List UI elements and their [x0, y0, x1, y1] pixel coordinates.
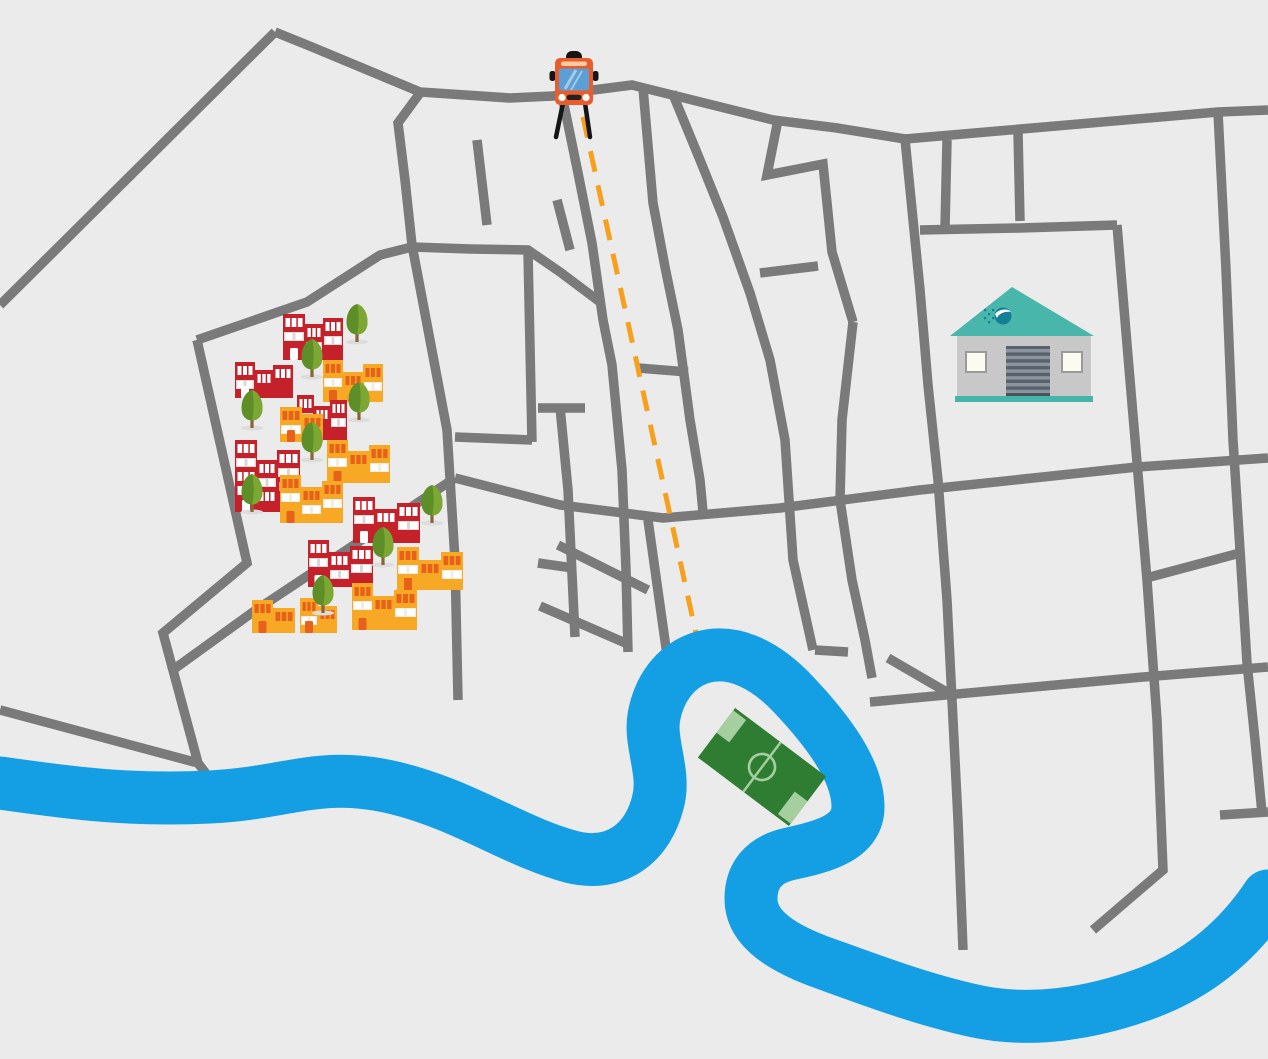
window	[290, 469, 298, 476]
window	[366, 550, 371, 559]
window	[294, 479, 298, 488]
window	[454, 571, 461, 578]
window	[406, 507, 411, 516]
window	[292, 494, 299, 501]
window	[295, 411, 300, 420]
window	[381, 464, 388, 471]
building-door	[287, 511, 295, 523]
window	[356, 455, 360, 464]
window	[296, 333, 303, 340]
window	[332, 571, 339, 578]
window	[333, 419, 338, 426]
window	[377, 368, 381, 377]
window	[249, 366, 253, 375]
window	[378, 513, 383, 522]
window	[356, 501, 361, 510]
door-slat	[1006, 356, 1050, 359]
window	[397, 609, 405, 616]
window	[271, 464, 275, 473]
window	[372, 449, 376, 458]
window	[336, 485, 340, 494]
window	[340, 419, 345, 426]
window	[286, 318, 291, 327]
window	[266, 604, 270, 613]
window	[304, 399, 307, 408]
city-map-illustration	[0, 0, 1268, 1059]
building-door	[287, 430, 295, 442]
window	[403, 594, 408, 603]
bus-mirror	[593, 71, 599, 81]
window	[325, 500, 332, 507]
window	[356, 516, 363, 523]
window	[326, 322, 330, 331]
city-map-canvas	[0, 0, 1268, 1059]
window	[337, 404, 340, 413]
window	[258, 374, 261, 383]
door-slat	[1006, 349, 1050, 352]
window	[360, 587, 364, 596]
window	[276, 612, 281, 621]
window	[444, 556, 449, 565]
road	[815, 650, 848, 652]
window	[353, 550, 358, 559]
window	[372, 464, 379, 471]
window	[413, 507, 418, 516]
window	[412, 551, 417, 560]
window	[238, 486, 243, 495]
door-slat	[1006, 390, 1050, 393]
window	[238, 472, 243, 481]
window	[289, 411, 294, 420]
window	[288, 612, 293, 621]
window	[410, 594, 415, 603]
window	[260, 464, 264, 473]
window	[341, 571, 348, 578]
window	[422, 564, 427, 573]
window	[322, 544, 326, 553]
window	[330, 459, 337, 466]
window	[359, 550, 364, 559]
window	[325, 410, 328, 419]
window	[313, 506, 320, 513]
window	[331, 322, 335, 331]
building-door	[305, 621, 313, 633]
window	[317, 328, 320, 337]
window	[387, 600, 391, 609]
window	[282, 612, 287, 621]
window	[281, 369, 285, 378]
door-slat	[1006, 369, 1050, 372]
road	[945, 140, 947, 228]
window	[351, 376, 355, 385]
window	[260, 604, 264, 613]
window	[339, 459, 346, 466]
window	[265, 492, 269, 501]
window	[271, 492, 275, 501]
window	[312, 602, 315, 611]
bus-mirror	[550, 71, 556, 81]
window	[250, 444, 255, 453]
window	[335, 379, 341, 386]
window	[362, 501, 367, 510]
window	[283, 479, 287, 488]
window	[397, 594, 402, 603]
window	[400, 566, 407, 573]
window	[456, 556, 461, 565]
road	[538, 563, 573, 568]
window	[262, 374, 265, 383]
window	[304, 491, 308, 500]
window	[311, 559, 318, 566]
window	[316, 544, 320, 553]
window	[362, 455, 366, 464]
road	[1018, 132, 1020, 221]
window	[383, 449, 387, 458]
road	[638, 368, 688, 372]
building-door	[404, 578, 412, 590]
window	[335, 444, 339, 453]
road	[455, 437, 532, 440]
building-door	[359, 618, 367, 630]
window	[337, 322, 341, 331]
window	[238, 444, 243, 453]
building-door	[360, 531, 368, 543]
window	[238, 366, 242, 375]
window	[366, 516, 373, 523]
window	[303, 602, 306, 611]
window	[363, 565, 371, 572]
warehouse-window	[1062, 352, 1082, 372]
window	[269, 479, 275, 486]
window	[355, 602, 362, 609]
window	[390, 513, 395, 522]
window	[355, 587, 359, 596]
window	[238, 459, 245, 466]
window	[353, 565, 361, 572]
window	[368, 501, 373, 510]
window	[283, 411, 288, 420]
window	[255, 604, 259, 613]
door-slat	[1006, 383, 1050, 386]
window	[267, 374, 270, 383]
window	[400, 522, 408, 529]
window	[366, 368, 370, 377]
window	[377, 449, 381, 458]
window	[326, 364, 330, 373]
window	[309, 399, 312, 408]
window	[434, 564, 439, 573]
window	[280, 454, 285, 463]
window	[366, 587, 370, 596]
window	[283, 494, 290, 501]
window	[243, 366, 247, 375]
window	[351, 455, 355, 464]
window	[326, 337, 332, 344]
window	[287, 369, 291, 378]
window	[450, 556, 455, 565]
window	[343, 556, 347, 565]
window	[364, 602, 371, 609]
window	[309, 491, 313, 500]
door-slat	[1006, 363, 1050, 366]
window	[407, 609, 415, 616]
building-door	[290, 348, 298, 360]
window	[335, 337, 341, 344]
map-background	[0, 0, 1268, 1059]
window	[333, 404, 336, 413]
window	[298, 318, 303, 327]
window	[400, 507, 405, 516]
window	[276, 369, 280, 378]
window	[311, 544, 315, 553]
window	[326, 379, 332, 386]
door-slat	[1006, 376, 1050, 379]
window	[371, 368, 375, 377]
window	[288, 479, 292, 488]
warehouse-window	[966, 352, 986, 372]
building-door	[259, 621, 267, 633]
window	[337, 556, 341, 565]
window	[265, 464, 269, 473]
window	[428, 564, 433, 573]
window	[332, 556, 336, 565]
window	[337, 364, 341, 373]
window	[410, 566, 417, 573]
window	[304, 506, 311, 513]
window	[375, 383, 381, 390]
window	[315, 491, 319, 500]
window	[384, 513, 389, 522]
window	[330, 485, 334, 494]
window	[320, 559, 327, 566]
window	[381, 600, 385, 609]
window	[410, 522, 418, 529]
window	[376, 600, 380, 609]
bus-headlight	[582, 94, 589, 101]
road	[1220, 812, 1268, 815]
window	[406, 551, 411, 560]
road	[528, 252, 532, 442]
window	[330, 444, 334, 453]
window	[292, 318, 297, 327]
window	[325, 485, 329, 494]
window	[331, 364, 335, 373]
window	[342, 404, 345, 413]
window	[308, 328, 311, 337]
window	[286, 333, 293, 340]
bus-grille	[567, 95, 582, 100]
warehouse-base	[955, 396, 1093, 402]
bus-headlight	[558, 94, 565, 101]
window	[400, 551, 405, 560]
window	[244, 444, 249, 453]
window	[307, 602, 310, 611]
window	[286, 454, 291, 463]
window	[346, 376, 350, 385]
window	[293, 454, 298, 463]
window	[280, 469, 288, 476]
window	[300, 399, 303, 408]
window	[248, 459, 255, 466]
window	[341, 444, 345, 453]
bus-roof-stripe	[561, 62, 587, 67]
window	[312, 328, 315, 337]
window	[444, 571, 451, 578]
window	[334, 500, 341, 507]
